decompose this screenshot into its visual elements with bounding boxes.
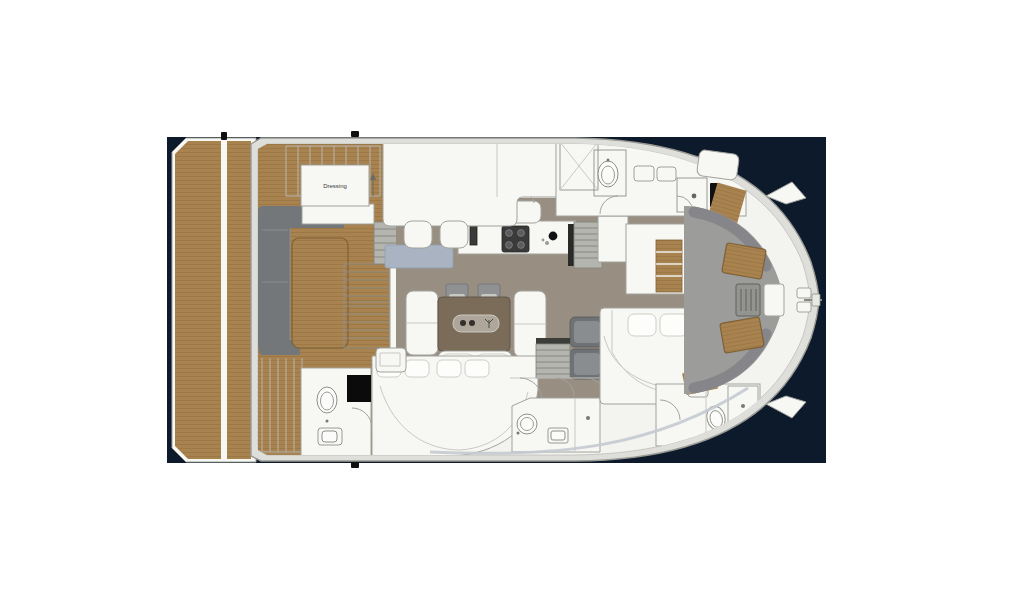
deck-grate [736,284,760,316]
stove-icon [502,226,529,252]
catamaran-floorplan: Dressing [0,0,1024,600]
cabinet [657,167,676,181]
cabinet [634,166,654,181]
transom-cleat-icon [221,132,227,140]
shower-head-icon [741,404,745,408]
screenshot-canvas: Dressing [0,0,1024,600]
pillow [405,360,429,377]
platform-teak-outer [175,141,221,459]
foredeck-teak-table [722,243,767,279]
aft-bathroom [301,368,372,458]
shower-head-icon [692,194,697,199]
shower-dark [347,375,371,402]
port-hull-stairs [568,222,602,268]
deck-locker [696,149,739,180]
oven-icon [470,224,477,245]
bow-hatch [764,284,784,316]
pillow [437,360,461,377]
starboard-hull-stairs [536,338,570,378]
platform-teak-inner [227,141,251,459]
dressing-room: Dressing [301,165,376,206]
dressing-label: Dressing [323,183,347,189]
pillow [628,314,656,336]
swim-platform [172,132,256,462]
cockpit-teak-table [292,238,348,348]
foredeck-teak-table [720,317,765,353]
table-centerpiece [453,315,499,332]
cleat-icon [351,131,359,137]
pillow [660,314,688,336]
cleat-icon [351,462,359,468]
mid-bathroom [512,398,600,452]
cabin-ledge [302,204,374,224]
foredeck-door-steps [656,240,682,292]
shower-head-icon [586,416,590,420]
pillow [465,360,489,377]
